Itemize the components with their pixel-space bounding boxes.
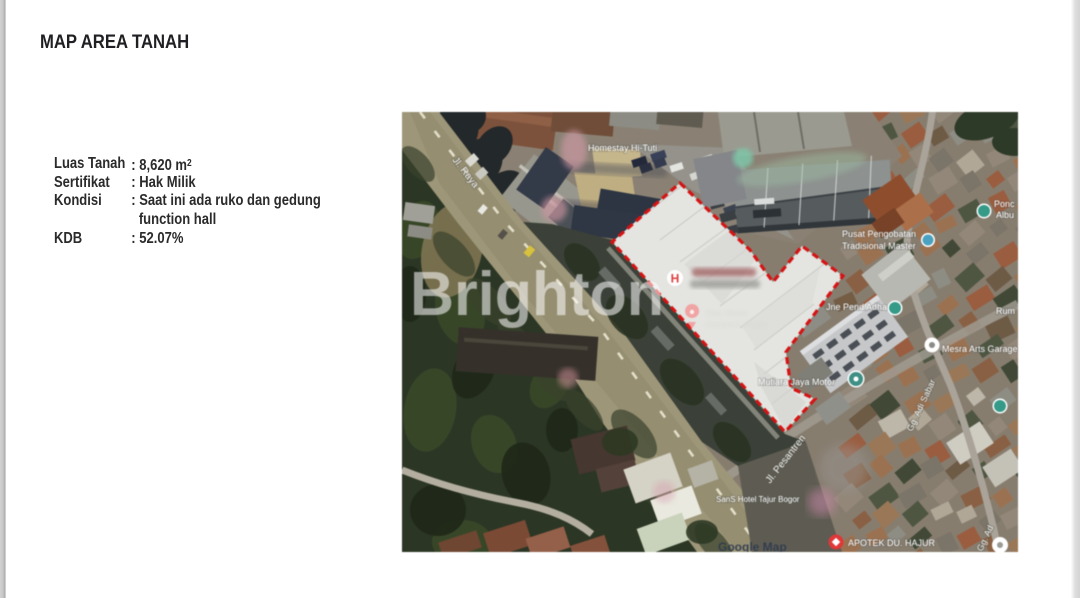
svg-text:Autoparts Bogor: Autoparts Bogor	[705, 319, 767, 329]
svg-text:SanS Hotel Tajur Bogor: SanS Hotel Tajur Bogor	[716, 495, 800, 504]
svg-text:Toko Media: Toko Media	[705, 308, 749, 318]
svg-text:Rum: Rum	[996, 306, 1015, 316]
svg-text:Jne Pend Adha: Jne Pend Adha	[826, 302, 887, 312]
svg-text:Brighton: Brighton	[410, 260, 664, 329]
svg-text:Ponc: Ponc	[994, 199, 1015, 209]
svg-text:Tradisional Master: Tradisional Master	[842, 241, 916, 251]
svg-text:Homestay Hi-Tuti: Homestay Hi-Tuti	[588, 143, 657, 153]
svg-text:Mutiara Jaya Motor: Mutiara Jaya Motor	[758, 377, 835, 387]
svg-text:APOTEK DU. HAJUR: APOTEK DU. HAJUR	[848, 538, 936, 548]
svg-text:Pusat Pengobatan: Pusat Pengobatan	[842, 229, 916, 239]
svg-text:Mesra Arts Garage: Mesra Arts Garage	[942, 344, 1018, 354]
svg-text:H: H	[671, 272, 680, 286]
svg-text:Albu: Albu	[996, 210, 1014, 220]
svg-text:Google Map: Google Map	[718, 540, 787, 552]
